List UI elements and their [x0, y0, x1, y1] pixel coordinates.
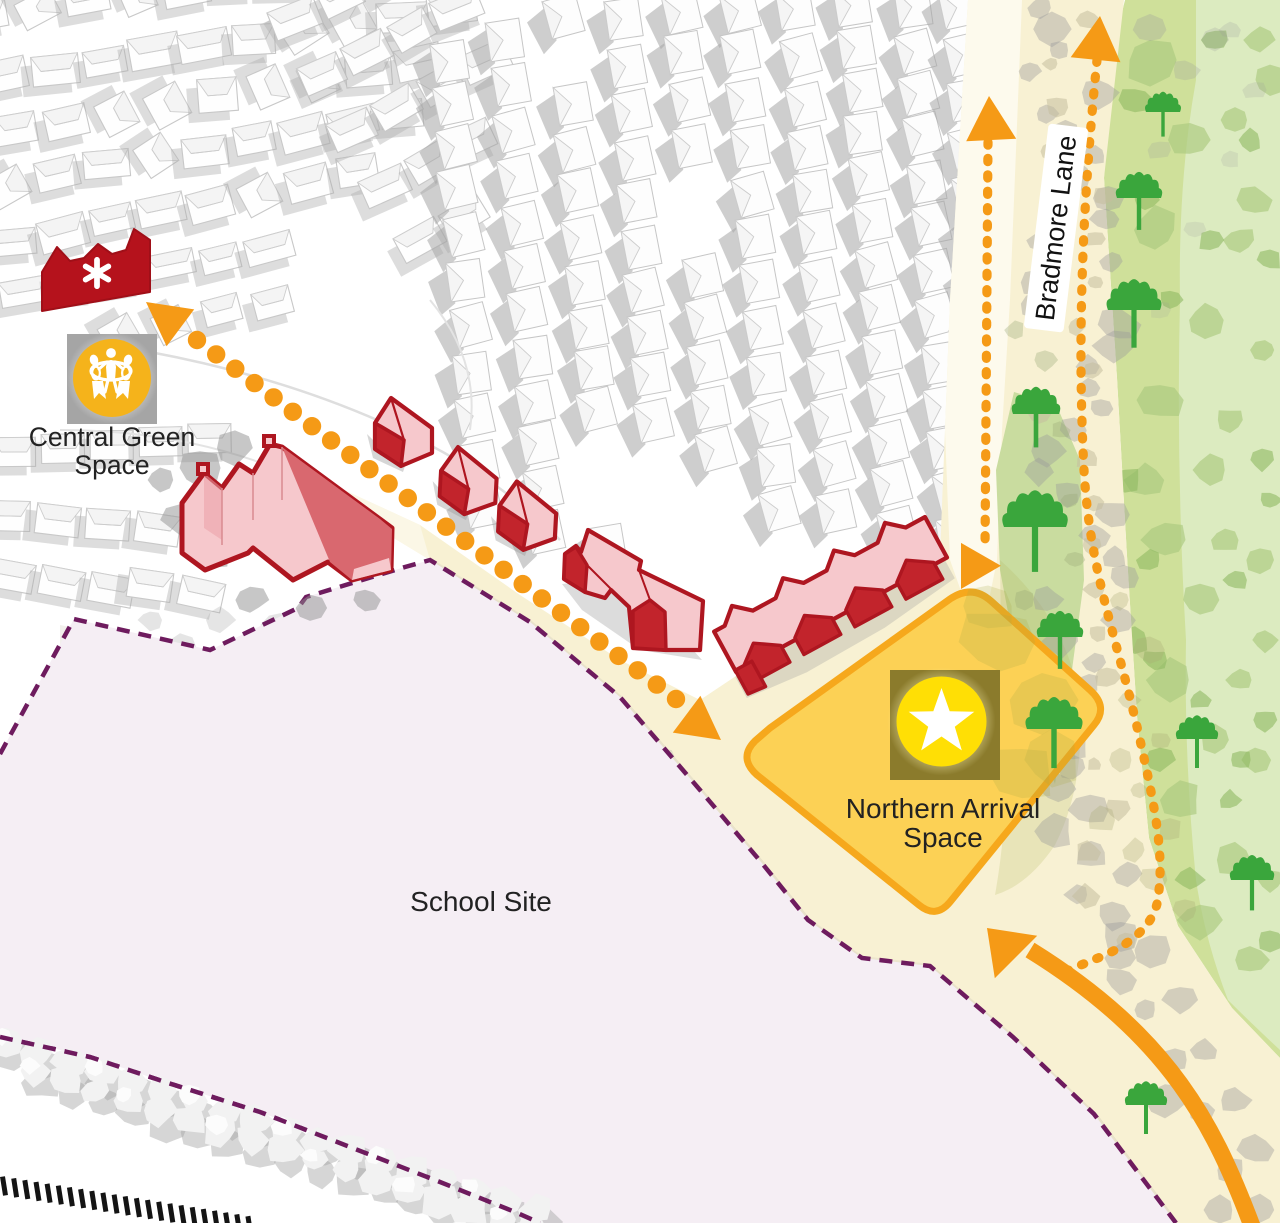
svg-text:Space: Space: [903, 822, 982, 853]
svg-text:Space: Space: [74, 450, 149, 480]
svg-text:School Site: School Site: [410, 886, 552, 917]
svg-text:Central Green: Central Green: [29, 422, 195, 452]
svg-text:Northern Arrival: Northern Arrival: [846, 793, 1041, 824]
